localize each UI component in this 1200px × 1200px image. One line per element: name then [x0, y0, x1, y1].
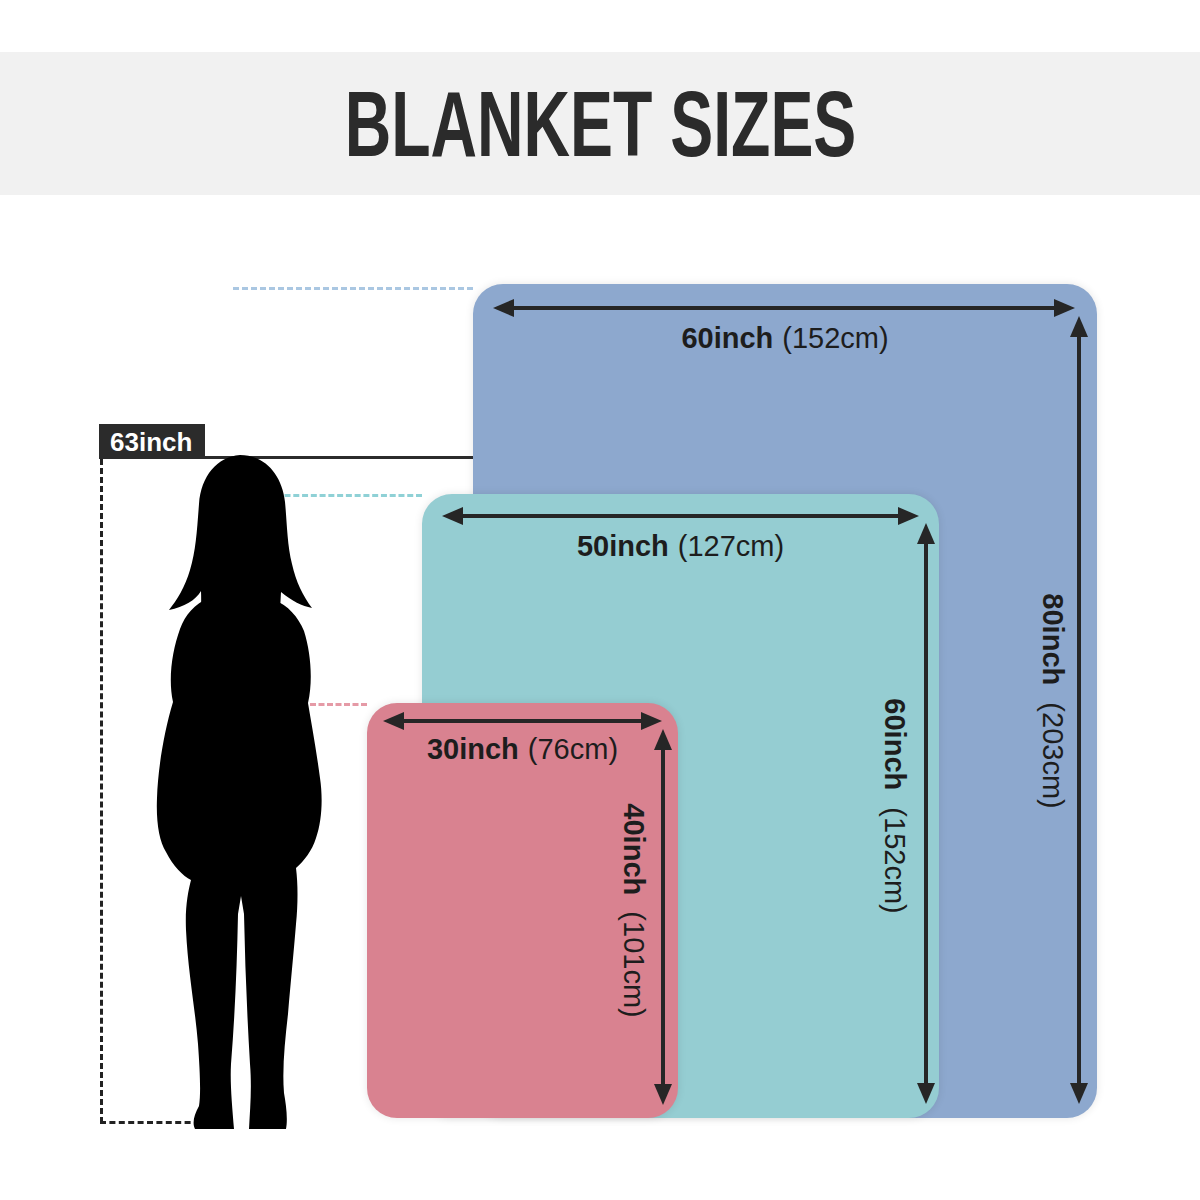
arrow-left-icon — [383, 712, 404, 730]
woman-body — [157, 598, 322, 1129]
blanket-medium-width-label: 50inch(127cm) — [422, 532, 939, 561]
blanket-small: 30inch(76cm) 40inch (101cm) — [367, 703, 678, 1118]
blanket-large-height-label: 80inch (203cm) — [1038, 593, 1067, 808]
blanket-small-width-label: 30inch(76cm) — [367, 735, 678, 764]
page-title: BLANKET SIZES — [344, 78, 856, 170]
arrow-up-icon — [1070, 316, 1088, 337]
blanket-medium-height-arrow — [915, 523, 937, 1104]
arrow-right-icon — [1054, 299, 1075, 317]
person-height-dash-vertical — [100, 459, 103, 1123]
blanket-large-width-arrow — [493, 298, 1075, 318]
arrow-down-icon — [1070, 1083, 1088, 1104]
blanket-medium-width-arrow — [442, 506, 919, 526]
blanket-large-height-arrow — [1068, 316, 1090, 1104]
width-inches: 30inch — [427, 733, 519, 765]
blanket-medium-height-label: 60inch (152cm) — [880, 698, 909, 913]
arrow-down-icon — [917, 1083, 935, 1104]
width-cm: (152cm) — [782, 322, 888, 354]
arrow-right-icon — [641, 712, 662, 730]
blanket-small-height-arrow — [652, 729, 674, 1105]
arrow-left-icon — [442, 507, 463, 525]
arrow-left-icon — [493, 299, 514, 317]
blanket-large-width-label: 60inch(152cm) — [473, 324, 1097, 353]
width-cm: (76cm) — [528, 733, 618, 765]
arrow-down-icon — [654, 1084, 672, 1105]
person-height-label: 63inch — [110, 429, 192, 455]
blanket-small-height-label: 40inch (101cm) — [619, 803, 648, 1018]
width-cm: (127cm) — [678, 530, 784, 562]
height-cm: (203cm) — [1037, 702, 1069, 808]
height-inches: 40inch — [618, 803, 650, 895]
arrow-up-icon — [654, 729, 672, 750]
header-band: BLANKET SIZES — [0, 52, 1200, 195]
height-cm: (101cm) — [618, 912, 650, 1018]
woman-silhouette — [144, 452, 336, 1132]
guide-dash-blue — [233, 287, 473, 290]
height-cm: (152cm) — [879, 807, 911, 913]
infographic-canvas: BLANKET SIZES 60inch(152cm) 80inch (203c… — [0, 0, 1200, 1200]
arrow-up-icon — [917, 523, 935, 544]
width-inches: 50inch — [577, 530, 669, 562]
height-inches: 60inch — [879, 698, 911, 790]
width-inches: 60inch — [681, 322, 773, 354]
blanket-small-width-arrow — [383, 711, 662, 731]
height-inches: 80inch — [1037, 593, 1069, 685]
